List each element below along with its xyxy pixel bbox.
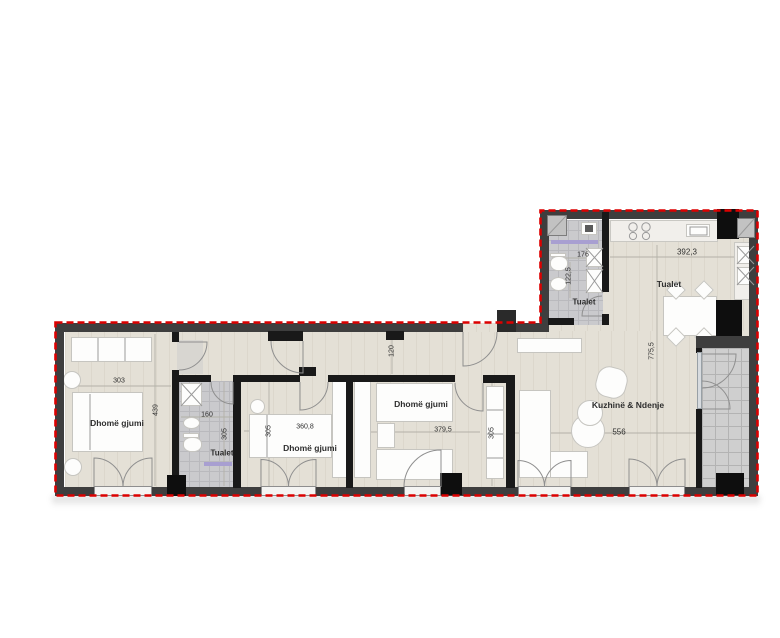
shelf-accent bbox=[551, 240, 598, 244]
floor-entry-opening bbox=[463, 323, 497, 332]
shower bbox=[181, 383, 202, 406]
entry-mat bbox=[177, 340, 203, 374]
sideboard bbox=[517, 338, 582, 353]
dim-living-depth: 775,5 bbox=[649, 342, 656, 360]
dim-living-width: 556 bbox=[612, 428, 625, 437]
dim-bedroom-3-width: 379,5 bbox=[434, 427, 452, 434]
room-label-kitchen-zone: Tualet bbox=[657, 279, 681, 289]
dim-toilet-2-width: 176 bbox=[577, 252, 589, 259]
room-label-bedroom-2: Dhomë gjumi bbox=[283, 443, 337, 453]
dim-bedroom-1-width: 303 bbox=[113, 378, 125, 385]
dim-corridor-depth: 120 bbox=[389, 345, 396, 357]
entry-wall-stub bbox=[497, 310, 516, 332]
dim-bedroom-3-depth: 305 bbox=[489, 427, 496, 439]
shelf-accent bbox=[204, 462, 232, 466]
door-jamb bbox=[299, 367, 316, 376]
column bbox=[717, 209, 739, 239]
column bbox=[716, 473, 744, 495]
shaft bbox=[737, 218, 755, 238]
boiler-icon bbox=[585, 225, 593, 232]
dim-toilet-2-depth: 122,5 bbox=[566, 267, 573, 285]
partition bbox=[179, 375, 211, 382]
column bbox=[440, 473, 462, 495]
wardrobe bbox=[71, 337, 152, 362]
nightstand bbox=[64, 458, 82, 476]
dim-bedroom-1-depth: 439 bbox=[153, 404, 160, 416]
partition bbox=[548, 318, 574, 325]
partition bbox=[353, 375, 455, 382]
partition bbox=[241, 375, 300, 382]
partition bbox=[346, 375, 353, 488]
partition bbox=[233, 375, 241, 488]
sink bbox=[183, 417, 200, 429]
room-label-living: Kuzhinë & Ndenje bbox=[592, 400, 664, 410]
sofa bbox=[519, 390, 551, 478]
partition bbox=[602, 314, 609, 325]
exterior-wall bbox=[55, 323, 64, 496]
toilet-wc bbox=[183, 437, 202, 452]
window bbox=[261, 486, 316, 496]
dim-bedroom-2-width: 360,8 bbox=[296, 424, 314, 431]
room-label-toilet-2: Tualet bbox=[573, 298, 596, 307]
room-label-bedroom-1: Dhomë gjumi bbox=[90, 418, 144, 428]
dim-toilet-1-width: 160 bbox=[201, 412, 213, 419]
dim-kitchen-zone-width: 392,3 bbox=[677, 248, 697, 257]
wardrobe bbox=[332, 379, 347, 478]
column bbox=[716, 300, 742, 336]
bath-counter bbox=[586, 269, 603, 293]
plan-shadow bbox=[52, 496, 760, 507]
wardrobe bbox=[354, 381, 371, 478]
room-label-bedroom-3: Dhomë gjumi bbox=[394, 399, 448, 409]
exterior-wall bbox=[749, 210, 758, 496]
bidet bbox=[550, 277, 567, 291]
partition bbox=[602, 212, 609, 292]
shaft bbox=[547, 215, 567, 236]
balcony-glass-door bbox=[697, 352, 702, 409]
column bbox=[167, 475, 186, 496]
partition bbox=[172, 332, 179, 342]
door-jamb bbox=[268, 331, 303, 341]
door-jamb bbox=[386, 331, 404, 340]
dim-toilet-1-depth: 305 bbox=[222, 428, 229, 440]
nightstand bbox=[377, 423, 395, 448]
balcony-wall bbox=[696, 336, 754, 348]
dim-bedroom-2-depth: 305 bbox=[266, 425, 273, 437]
window bbox=[404, 486, 441, 496]
room-label-toilet-1: Tualet bbox=[211, 449, 234, 458]
sofa-chaise bbox=[550, 451, 588, 478]
window bbox=[629, 486, 685, 496]
partition bbox=[172, 370, 179, 488]
kitchen-sink bbox=[686, 224, 710, 237]
window bbox=[94, 486, 152, 496]
dining-table bbox=[663, 296, 717, 336]
partition bbox=[506, 375, 515, 488]
window bbox=[518, 486, 571, 496]
nightstand bbox=[63, 371, 81, 389]
floor-balcony bbox=[702, 348, 750, 488]
nightstand bbox=[250, 399, 265, 414]
floor-plan: Dhomë gjumi 303 439 Tualet 160 305 Dhomë… bbox=[0, 0, 780, 638]
balcony-partition bbox=[696, 409, 702, 488]
